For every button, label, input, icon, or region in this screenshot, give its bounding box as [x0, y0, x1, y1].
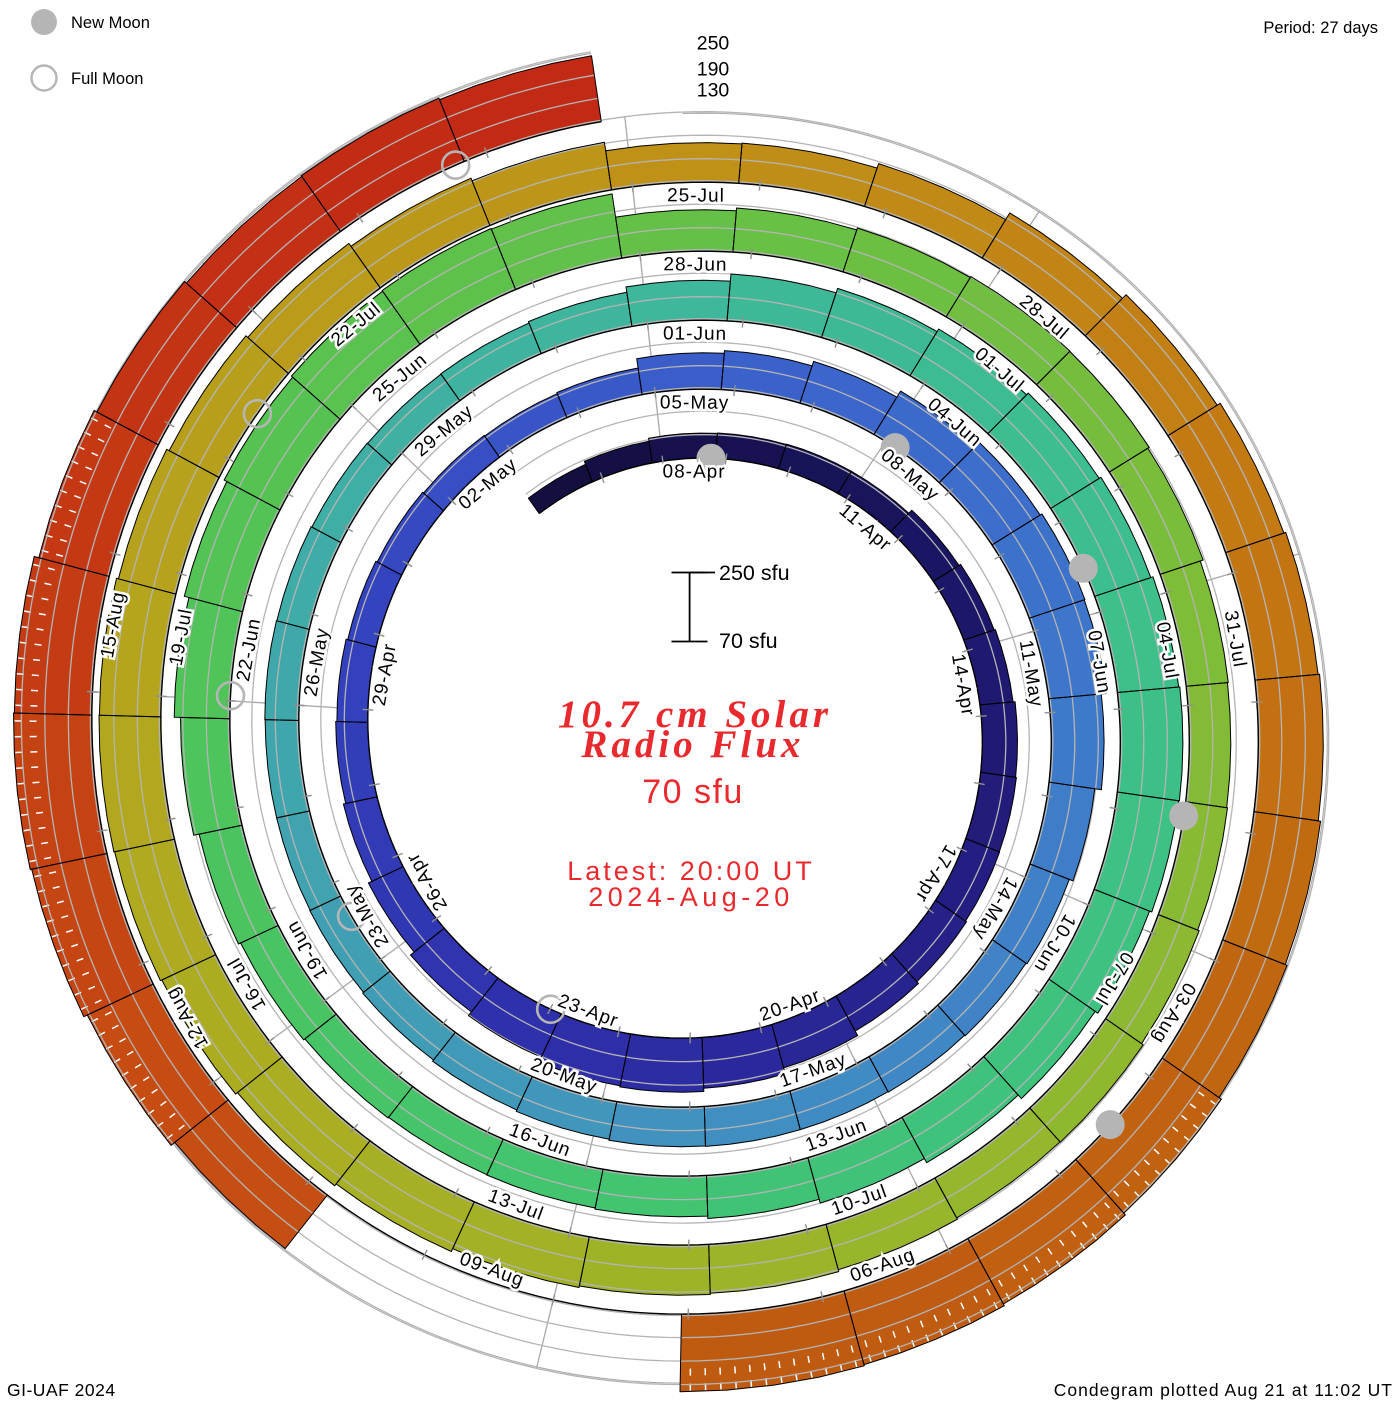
svg-text:New Moon: New Moon: [71, 14, 150, 32]
svg-text:250 sfu: 250 sfu: [719, 561, 790, 585]
svg-text:25-Jul: 25-Jul: [667, 185, 725, 206]
svg-text:2024-Aug-20: 2024-Aug-20: [588, 882, 794, 912]
svg-text:130: 130: [697, 80, 730, 102]
svg-text:28-Jun: 28-Jun: [663, 254, 727, 275]
svg-text:70 sfu: 70 sfu: [719, 629, 778, 653]
svg-text:01-Jun: 01-Jun: [663, 323, 727, 344]
svg-text:05-May: 05-May: [660, 392, 730, 413]
svg-text:Radio Flux: Radio Flux: [580, 723, 804, 766]
svg-text:Full Moon: Full Moon: [71, 70, 143, 88]
svg-text:70 sfu: 70 sfu: [642, 773, 744, 811]
svg-text:190: 190: [697, 59, 730, 81]
svg-text:08-Apr: 08-Apr: [663, 461, 726, 482]
svg-text:Condegram plotted Aug 21 at 11: Condegram plotted Aug 21 at 11:02 UT: [1054, 1380, 1393, 1400]
svg-text:250: 250: [697, 33, 730, 55]
svg-text:GI-UAF 2024: GI-UAF 2024: [7, 1380, 116, 1400]
svg-text:Period: 27 days: Period: 27 days: [1263, 19, 1378, 37]
